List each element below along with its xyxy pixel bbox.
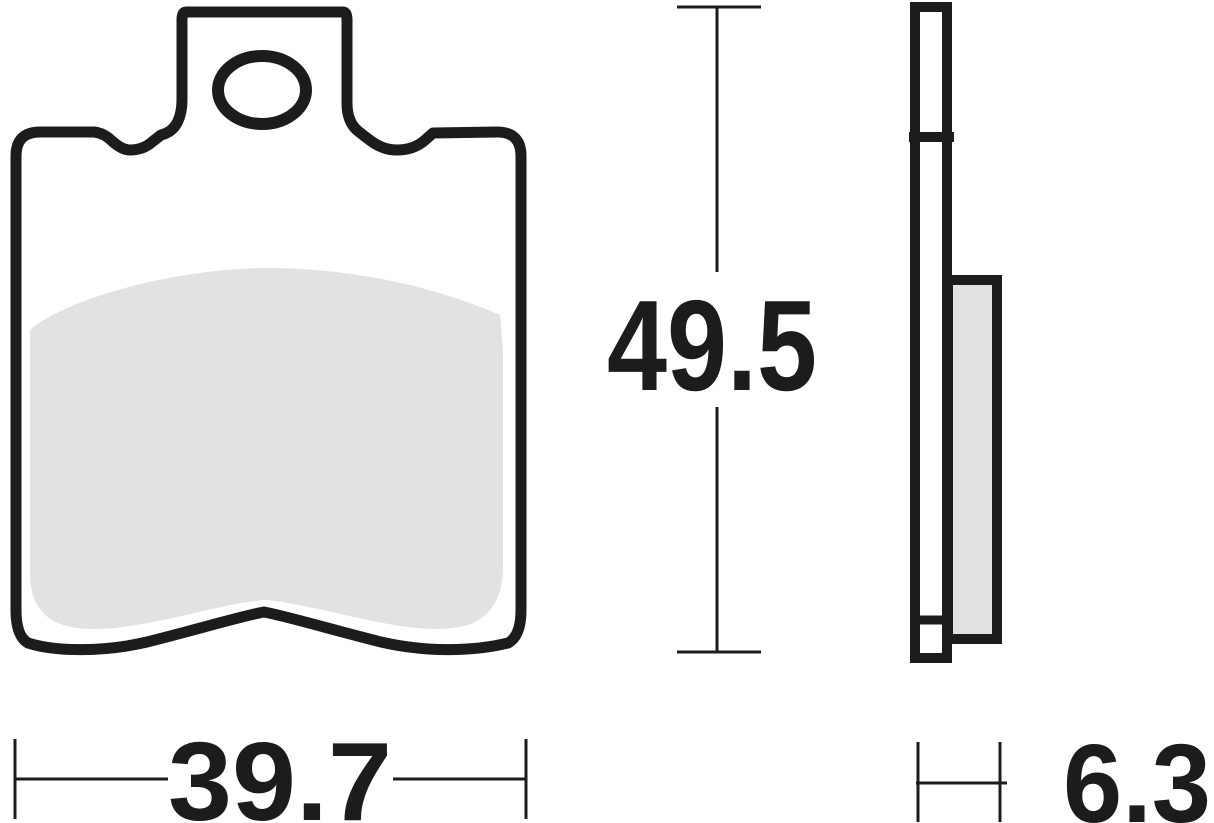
width-dimension-label: 39.7 xyxy=(168,720,392,823)
thickness-dimension xyxy=(916,742,1007,822)
front-view xyxy=(16,12,521,650)
drawing-stage: 49.5 39.7 6.3 xyxy=(0,0,1214,823)
height-dimension-label: 49.5 xyxy=(607,274,817,418)
side-view xyxy=(909,7,997,658)
technical-drawing-canvas: 49.5 39.7 6.3 xyxy=(0,0,1214,823)
thickness-dimension-label: 6.3 xyxy=(1063,722,1211,823)
backing-plate-side xyxy=(915,7,947,658)
mounting-hole xyxy=(218,56,306,124)
friction-material-side xyxy=(948,280,997,639)
friction-material-front xyxy=(30,268,503,629)
